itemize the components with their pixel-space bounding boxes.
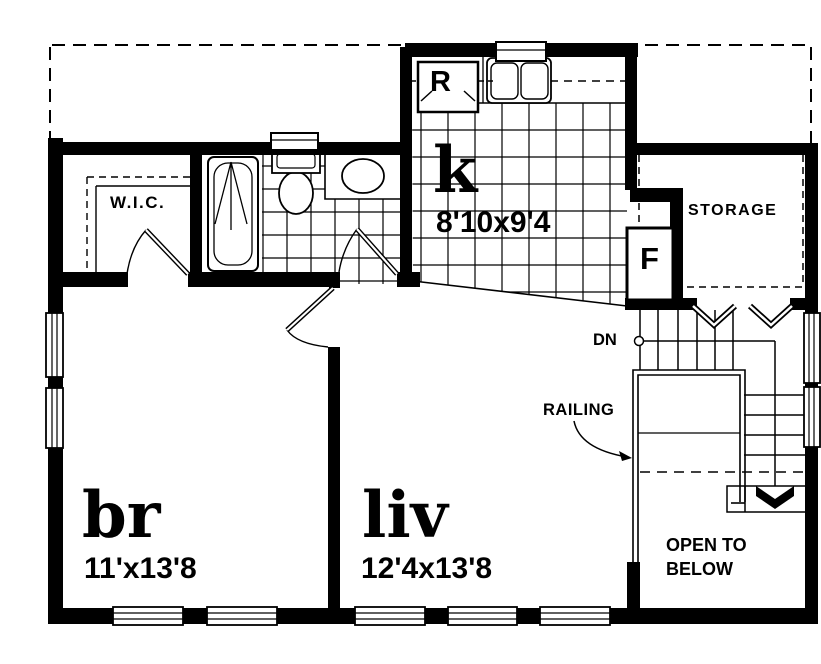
- railing-label: RAILING: [543, 402, 614, 419]
- open-to-below-line2: BELOW: [666, 557, 747, 581]
- vent-stack: [271, 133, 318, 150]
- window: [448, 607, 517, 625]
- bath-corner-wall: [397, 272, 420, 287]
- kitchen-left-wall: [400, 47, 412, 287]
- kitchen-floor-edge: [413, 281, 627, 306]
- winder-chevron-icons: [693, 306, 792, 325]
- living-label: liv: [362, 484, 448, 548]
- open-to-below-line1: OPEN TO: [666, 533, 747, 557]
- bedroom-label: br: [82, 484, 160, 548]
- wic-door: [127, 230, 188, 274]
- kitchen-right-wall: [625, 47, 637, 190]
- left-wall: [48, 138, 63, 624]
- window: [804, 387, 820, 447]
- wic-right-wall: [190, 142, 202, 287]
- wic-label: W.I.C.: [110, 194, 165, 211]
- storage-label: STORAGE: [688, 203, 777, 219]
- bathtub: [208, 157, 258, 271]
- furnace-label: F: [640, 243, 659, 274]
- living-dims: 12'4x13'8: [361, 554, 492, 584]
- kitchen-sink: [487, 58, 551, 103]
- window: [46, 313, 63, 377]
- window: [804, 313, 820, 383]
- bath-bottom-wall: [188, 272, 335, 287]
- dn-marker: [635, 337, 644, 346]
- window: [46, 388, 63, 448]
- kitchen-dims: 8'10x9'4: [436, 208, 550, 238]
- open-below-wall-stub: [627, 562, 640, 608]
- storage-top-wall: [632, 143, 813, 155]
- window: [207, 607, 277, 625]
- railing-leader-arrow: [574, 421, 632, 461]
- vanity-sink: [325, 155, 400, 199]
- refrigerator-label: R: [430, 68, 451, 97]
- floor-plan: W.I.C. k 8'10x9'4 STORAGE F R DN RAILING…: [0, 0, 821, 664]
- window: [355, 607, 425, 625]
- window: [540, 607, 610, 625]
- door-stub: [329, 272, 340, 288]
- bedroom-dims: 11'x13'8: [84, 554, 197, 584]
- open-to-below-label: OPEN TO BELOW: [666, 533, 747, 581]
- bedroom-top-wall: [48, 272, 128, 287]
- interior-wall-top: [48, 142, 412, 155]
- furnace-closet-top: [630, 188, 683, 202]
- window: [113, 607, 183, 625]
- down-arrow-icon: [756, 486, 794, 509]
- chimney: [496, 42, 546, 61]
- bedroom-door: [287, 288, 333, 347]
- toilet: [272, 149, 320, 214]
- kitchen-label: k: [433, 139, 477, 203]
- bathroom-door: [339, 229, 397, 274]
- bedroom-living-wall: [328, 347, 340, 608]
- dn-label: DN: [593, 332, 617, 349]
